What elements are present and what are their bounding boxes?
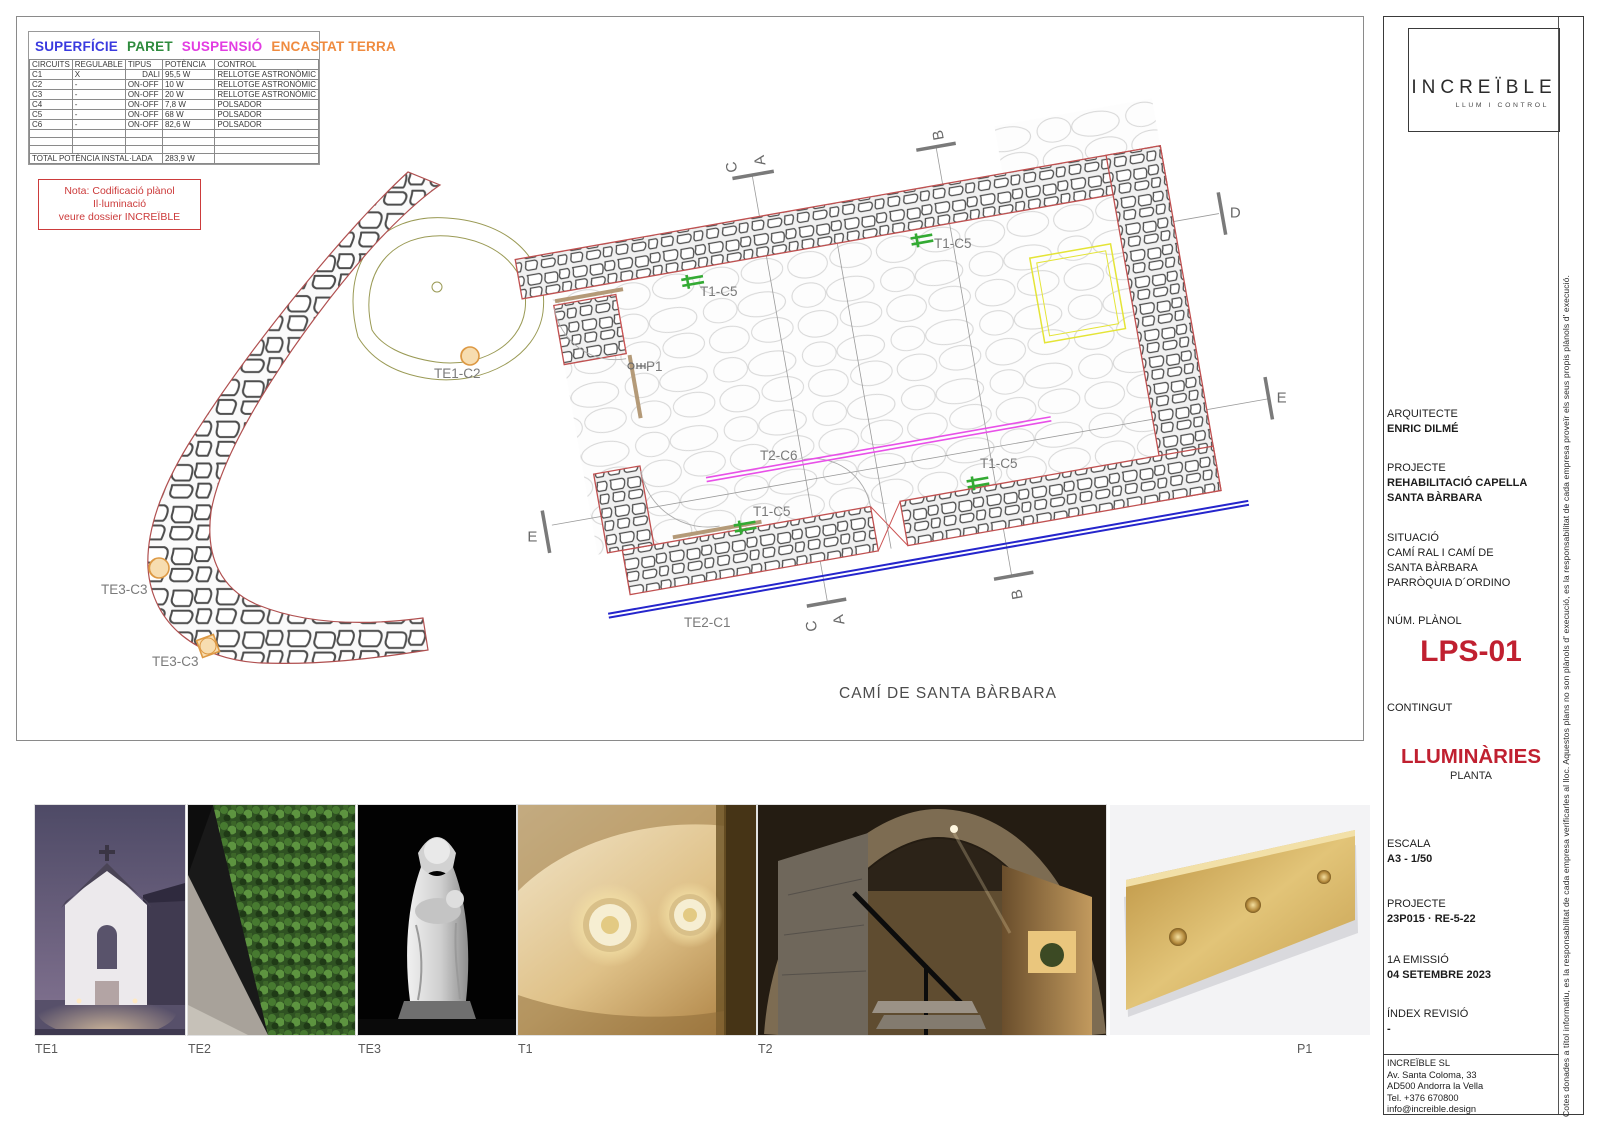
photo-label-p1: P1 bbox=[1297, 1042, 1312, 1056]
company-address1: Av. Santa Coloma, 33 bbox=[1387, 1070, 1559, 1082]
content-label: CONTINGUT bbox=[1387, 701, 1555, 716]
content-value: LLUMINÀRIES bbox=[1387, 745, 1555, 769]
photo-label-te2: TE2 bbox=[188, 1042, 211, 1056]
chapel-plan: C A C A B B D E E bbox=[468, 72, 1315, 681]
table-row: C1XDALI95,5 WRELLOTGE ASTRONÒMIC bbox=[30, 70, 319, 80]
scale-section: ESCALA A3 - 1/50 bbox=[1387, 837, 1555, 867]
photo-te3-statue bbox=[358, 805, 516, 1035]
situation-line3: PARRÒQUIA D´ORDINO bbox=[1387, 576, 1555, 591]
photo-t1-wall-lamps bbox=[518, 805, 756, 1035]
project-value-2: SANTA BÀRBARA bbox=[1387, 491, 1555, 506]
label-te3c3: TE3-C3 bbox=[101, 582, 148, 597]
scale-value: A3 - 1/50 bbox=[1387, 852, 1555, 867]
section-letter: D bbox=[1230, 205, 1241, 222]
label-t1c5: T1-C5 bbox=[753, 504, 791, 519]
title-block-divider bbox=[1558, 17, 1559, 1114]
scale-label: ESCALA bbox=[1387, 837, 1555, 852]
label-t1c5: T1-C5 bbox=[700, 284, 738, 299]
label-te2c1: TE2-C1 bbox=[684, 615, 731, 630]
plan-frame: C A C A B B D E E bbox=[16, 16, 1364, 741]
table-row: C2-ON-OFF10 WRELLOTGE ASTRONÒMIC bbox=[30, 80, 319, 90]
project-section: PROJECTE REHABILITACIÓ CAPELLA SANTA BÀR… bbox=[1387, 461, 1555, 506]
green-wall-photo-art bbox=[188, 805, 355, 1035]
table-row: C6-ON-OFF82,6 WPOLSADOR bbox=[30, 120, 319, 130]
legend-paret: PARET bbox=[127, 39, 173, 54]
architect-label: ARQUITECTE bbox=[1387, 407, 1555, 422]
emission-label: 1A EMISSIÓ bbox=[1387, 953, 1555, 968]
revision-value: - bbox=[1387, 1022, 1555, 1037]
company-name: INCREÏBLE SL bbox=[1387, 1058, 1559, 1070]
content-sub: PLANTA bbox=[1387, 770, 1555, 782]
brass-plate-photo-art bbox=[1110, 805, 1370, 1035]
street-label: CAMÍ DE SANTA BÀRBARA bbox=[839, 685, 1057, 703]
project-label: PROJECTE bbox=[1387, 461, 1555, 476]
table-header-row: CIRCUITS REGULABLE TIPUS POTÈNCIA CONTRO… bbox=[30, 60, 319, 70]
architect-value: ENRIC DILMÉ bbox=[1387, 422, 1555, 437]
company-address-block: INCREÏBLE SL Av. Santa Coloma, 33 AD500 … bbox=[1384, 1054, 1559, 1116]
table-row: C5-ON-OFF68 WPOLSADOR bbox=[30, 110, 319, 120]
stone-path bbox=[148, 172, 440, 663]
legend-superficie: SUPERFÍCIE bbox=[35, 39, 118, 54]
statue-photo-art bbox=[358, 805, 516, 1035]
plan-number-value: LPS-01 bbox=[1387, 635, 1555, 669]
logo-tagline: LLUM I CONTROL bbox=[1409, 102, 1559, 109]
photo-te1-church bbox=[35, 805, 185, 1035]
company-email: info@increible.design bbox=[1387, 1104, 1559, 1116]
label-t1c5: T1-C5 bbox=[934, 236, 972, 251]
emission-section: 1A EMISSIÓ 04 SETEMBRE 2023 bbox=[1387, 953, 1555, 983]
plan-number-label: NÚM. PLÀNOL bbox=[1387, 614, 1555, 629]
section-letter: E bbox=[527, 529, 537, 546]
label-te3c3: TE3-C3 bbox=[152, 654, 199, 669]
emission-value: 04 SETEMBRE 2023 bbox=[1387, 968, 1555, 983]
section-letter: B bbox=[1008, 588, 1026, 601]
company-logo: INCREÏBLE LLUM I CONTROL bbox=[1408, 28, 1560, 132]
section-letter: B bbox=[929, 129, 947, 142]
situation-line1: CAMÍ RAL I CAMÍ DE bbox=[1387, 546, 1555, 561]
project-code-label: PROJECTE bbox=[1387, 897, 1555, 912]
photo-label-t2: T2 bbox=[758, 1042, 773, 1056]
table-total-row: TOTAL POTÈNCIA INSTAL·LADA 283,9 W bbox=[30, 154, 319, 164]
photo-label-t1: T1 bbox=[518, 1042, 533, 1056]
project-code-section: PROJECTE 23P015 · RE-5-22 bbox=[1387, 897, 1555, 927]
photo-p1-brass-plate bbox=[1110, 805, 1370, 1035]
note-line2: veure dossier INCREÏBLE bbox=[42, 211, 197, 224]
section-letter: C bbox=[803, 619, 822, 633]
table-row-empty bbox=[30, 146, 319, 154]
wall-lamps-photo-art bbox=[518, 805, 756, 1035]
table-row: C3-ON-OFF20 WRELLOTGE ASTRONÒMIC bbox=[30, 90, 319, 100]
section-letter: C bbox=[723, 160, 742, 174]
circuits-table: CIRCUITS REGULABLE TIPUS POTÈNCIA CONTRO… bbox=[29, 59, 319, 164]
photo-te2-green-wall bbox=[188, 805, 355, 1035]
note-line1: Nota: Codificació plànol Il·luminació bbox=[42, 185, 197, 211]
section-letter: E bbox=[1277, 389, 1287, 406]
legend-encastat: ENCASTAT TERRA bbox=[271, 39, 396, 54]
revision-section: ÍNDEX REVISIÓ - bbox=[1387, 1007, 1555, 1037]
revision-label: ÍNDEX REVISIÓ bbox=[1387, 1007, 1555, 1022]
title-block: INCREÏBLE LLUM I CONTROL ARQUITECTE ENRI… bbox=[1383, 16, 1584, 1115]
vault-photo-art bbox=[758, 805, 1106, 1035]
table-row-empty bbox=[30, 138, 319, 146]
table-row: C4-ON-OFF7,8 WPOLSADOR bbox=[30, 100, 319, 110]
legend: SUPERFÍCIEPARETSUSPENSIÓENCASTAT TERRA C… bbox=[28, 31, 320, 165]
label-p1: P1 bbox=[646, 359, 663, 374]
label-t1c5: T1-C5 bbox=[980, 456, 1018, 471]
logo-wordmark: INCREÏBLE bbox=[1409, 77, 1559, 99]
legend-suspensio: SUSPENSIÓ bbox=[182, 39, 263, 54]
garden-contour bbox=[353, 218, 544, 380]
situation-line2: SANTA BÀRBARA bbox=[1387, 561, 1555, 576]
church-photo-art bbox=[35, 805, 185, 1035]
situation-label: SITUACIÓ bbox=[1387, 531, 1555, 546]
photo-label-te1: TE1 bbox=[35, 1042, 58, 1056]
section-letter: A bbox=[751, 154, 769, 167]
photo-t2-vault bbox=[758, 805, 1106, 1035]
mount-type-legend: SUPERFÍCIEPARETSUSPENSIÓENCASTAT TERRA bbox=[29, 32, 319, 59]
company-address2: AD500 Andorra la Vella bbox=[1387, 1081, 1559, 1093]
label-t2c6: T2-C6 bbox=[760, 448, 798, 463]
label-te1c2: TE1-C2 bbox=[434, 366, 481, 381]
architect-section: ARQUITECTE ENRIC DILMÉ bbox=[1387, 407, 1555, 437]
note-box: Nota: Codificació plànol Il·luminació ve… bbox=[38, 179, 201, 230]
situation-section: SITUACIÓ CAMÍ RAL I CAMÍ DE SANTA BÀRBAR… bbox=[1387, 531, 1555, 591]
company-phone: Tel. +376 670800 bbox=[1387, 1093, 1559, 1105]
project-value-1: REHABILITACIÓ CAPELLA bbox=[1387, 476, 1555, 491]
photo-label-te3: TE3 bbox=[358, 1042, 381, 1056]
table-row-empty bbox=[30, 130, 319, 138]
drawing-sheet: C A C A B B D E E bbox=[0, 0, 1600, 1131]
project-code-value: 23P015 · RE-5-22 bbox=[1387, 912, 1555, 927]
section-letter: A bbox=[830, 613, 848, 626]
disclaimer-vertical-text: Cotes donades a títol informatiu, es la … bbox=[1561, 117, 1582, 1117]
